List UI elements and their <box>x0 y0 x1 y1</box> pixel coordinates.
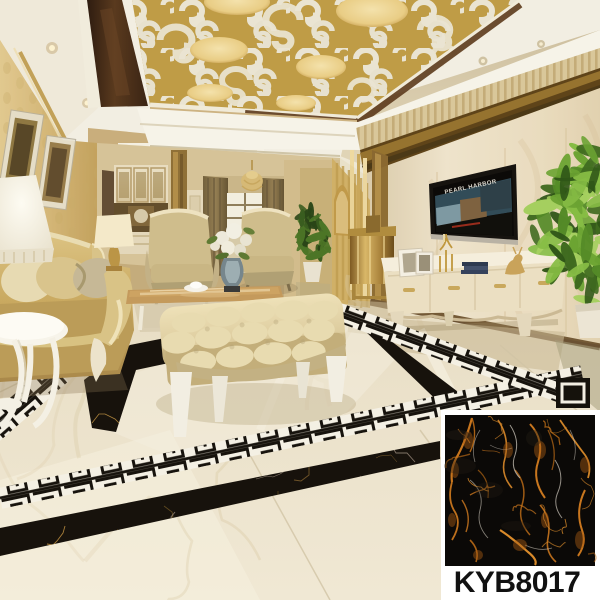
svg-text:KYB8017: KYB8017 <box>454 566 581 599</box>
